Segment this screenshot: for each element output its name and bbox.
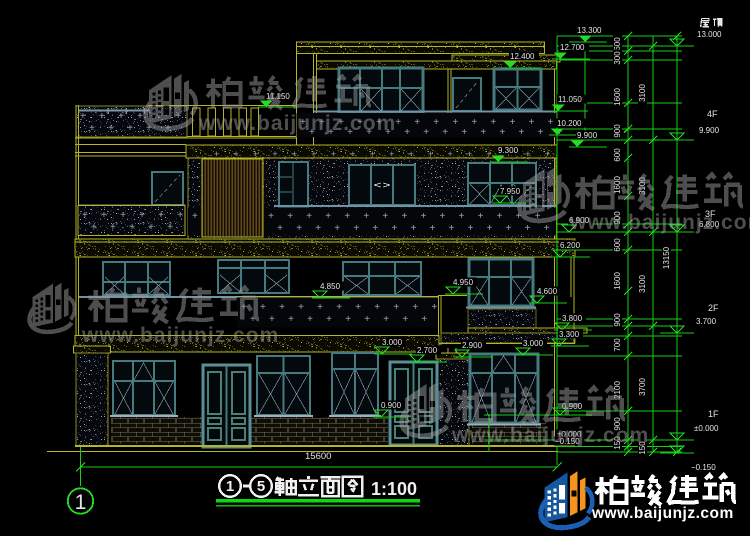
svg-text:1: 1 [75, 491, 87, 514]
svg-text:600: 600 [613, 148, 622, 162]
svg-text:+++++++++++: +++++++++++ [241, 302, 450, 313]
svg-text:4.850: 4.850 [320, 282, 341, 291]
svg-text:0.900: 0.900 [381, 401, 402, 410]
svg-text:4.950: 4.950 [453, 278, 474, 287]
svg-text:++++++: ++++++ [82, 210, 196, 221]
svg-text:3100: 3100 [638, 84, 647, 102]
svg-text:700: 700 [613, 338, 622, 352]
svg-text:1:100: 1:100 [371, 479, 417, 499]
svg-text:3100: 3100 [638, 275, 647, 293]
svg-text:4F: 4F [707, 109, 718, 119]
svg-text:3.300: 3.300 [559, 330, 580, 339]
svg-text:www.baijunjz.com: www.baijunjz.com [591, 505, 734, 522]
svg-text:13.300: 13.300 [577, 26, 602, 35]
svg-text:±0.000: ±0.000 [694, 424, 719, 433]
svg-text:+++++: +++++ [91, 222, 186, 233]
svg-text:13150: 13150 [662, 246, 671, 269]
svg-text:7.950: 7.950 [500, 187, 521, 196]
svg-text:9.300: 9.300 [498, 146, 519, 155]
svg-text:1600: 1600 [613, 272, 622, 290]
svg-text:9.900: 9.900 [699, 126, 720, 135]
svg-text:11.050: 11.050 [558, 95, 582, 104]
svg-text:www.baijunjz.com: www.baijunjz.com [198, 112, 396, 135]
svg-text:10.200: 10.200 [557, 119, 582, 128]
svg-text:1: 1 [226, 478, 234, 495]
svg-text:1F: 1F [708, 409, 719, 419]
svg-text:9.900: 9.900 [577, 131, 598, 140]
svg-text:12.700: 12.700 [560, 43, 585, 52]
svg-text:600: 600 [613, 37, 622, 51]
svg-text:3.000: 3.000 [523, 339, 544, 348]
svg-text:5: 5 [257, 478, 265, 495]
svg-text:300: 300 [613, 51, 622, 65]
svg-text:3.000: 3.000 [382, 338, 403, 347]
svg-text:3.800: 3.800 [562, 314, 583, 323]
svg-text:3.700: 3.700 [696, 317, 717, 326]
svg-text:600: 600 [613, 238, 622, 252]
svg-text:2.700: 2.700 [417, 346, 438, 355]
svg-text:900: 900 [613, 313, 622, 327]
svg-text:www.baijunjz.com: www.baijunjz.com [569, 211, 750, 234]
svg-text:2.900: 2.900 [462, 341, 483, 350]
svg-text:2F: 2F [708, 303, 719, 313]
svg-text:3700: 3700 [638, 378, 647, 396]
svg-text:15600: 15600 [305, 451, 331, 462]
svg-text:www.baijunjz.com: www.baijunjz.com [81, 324, 279, 347]
svg-text:6.200: 6.200 [560, 241, 581, 250]
svg-text:www.baijunjz.com: www.baijunjz.com [451, 424, 649, 447]
svg-text:4.600: 4.600 [537, 287, 558, 296]
svg-text:12.400: 12.400 [510, 52, 535, 61]
svg-text:1600: 1600 [613, 88, 622, 106]
svg-text:13.000: 13.000 [697, 30, 722, 39]
svg-text:900: 900 [613, 124, 622, 138]
svg-text:−0.150: −0.150 [691, 463, 716, 472]
